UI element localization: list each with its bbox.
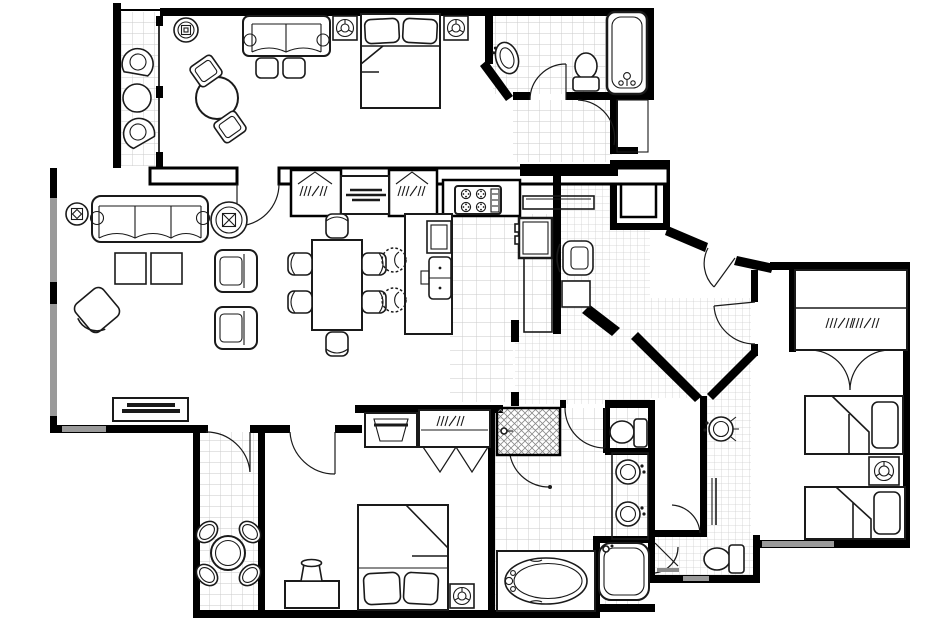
window xyxy=(50,198,57,282)
table-lamp xyxy=(66,203,88,225)
cooktop xyxy=(455,186,501,214)
queen-bed xyxy=(361,14,440,108)
door-twin-closet xyxy=(810,350,890,390)
window xyxy=(62,426,106,432)
nightstand-lamp xyxy=(333,16,357,40)
balcony-top xyxy=(118,46,158,150)
toilet xyxy=(704,545,744,573)
desk xyxy=(285,560,339,609)
floor-plan xyxy=(0,0,940,627)
closet xyxy=(795,270,907,350)
island xyxy=(405,214,452,334)
window xyxy=(50,304,57,416)
soaking-tub xyxy=(599,543,649,600)
closet-b xyxy=(389,170,437,216)
round-end-table-lamp xyxy=(211,202,247,238)
dining-table xyxy=(312,240,362,330)
tv-cabinet xyxy=(365,413,417,447)
threshold xyxy=(683,576,709,581)
twin-bed xyxy=(805,396,903,454)
round-patio-table xyxy=(211,536,245,570)
hallway-top-tiles xyxy=(513,100,612,162)
ottoman xyxy=(283,58,305,78)
bifold-closet xyxy=(419,410,490,472)
dining-chair xyxy=(326,332,348,356)
bathtub xyxy=(607,12,647,94)
twin-bath-tiles xyxy=(707,396,751,537)
dining-chair xyxy=(362,253,386,275)
window xyxy=(762,541,834,547)
ceiling-light-icon xyxy=(174,18,198,42)
queen-bedroom-top xyxy=(333,14,468,108)
sitting-room xyxy=(174,16,330,144)
oval-tub xyxy=(497,551,595,611)
loveseat xyxy=(243,16,330,56)
dining-area xyxy=(288,214,386,356)
twin-bed xyxy=(805,487,905,539)
living-room xyxy=(66,196,257,421)
shower xyxy=(497,408,560,455)
tv-console xyxy=(113,398,188,421)
ottoman xyxy=(256,58,278,78)
coffee-table xyxy=(115,253,146,284)
floor-plan-page xyxy=(0,0,940,627)
door-entry xyxy=(704,248,735,287)
side-table xyxy=(562,281,590,307)
corridor-tiles xyxy=(650,298,751,398)
armchair xyxy=(215,307,257,349)
coffee-table xyxy=(151,253,182,284)
kitchen-tiles-2 xyxy=(450,333,513,402)
toilet xyxy=(573,53,599,91)
armchair xyxy=(215,250,257,292)
dining-chair xyxy=(326,214,348,238)
nightstand-lamp xyxy=(869,457,899,485)
door-master-bedroom xyxy=(290,432,335,474)
door-toilet-room xyxy=(672,505,700,533)
twin-bedroom xyxy=(795,270,907,539)
queen-bed xyxy=(358,505,448,610)
ceiling-lamp xyxy=(450,584,474,608)
sofa xyxy=(91,196,210,242)
round-patio-table xyxy=(123,84,151,112)
foyer-tiles-3 xyxy=(515,332,650,404)
refrigerator xyxy=(515,218,552,258)
dining-chair xyxy=(288,253,312,275)
nightstand-lamp xyxy=(444,16,468,40)
dining-chair xyxy=(288,291,312,313)
vanity-sink xyxy=(616,460,640,484)
vanity-sink xyxy=(616,502,640,526)
closet-a xyxy=(291,170,341,216)
master-bedroom xyxy=(285,410,490,610)
swivel-chair xyxy=(69,285,123,339)
